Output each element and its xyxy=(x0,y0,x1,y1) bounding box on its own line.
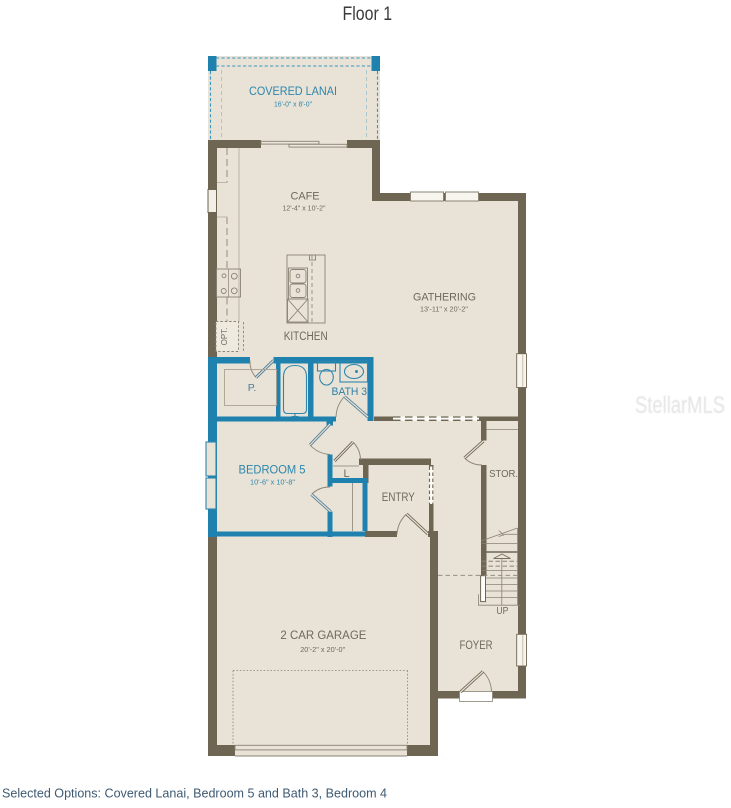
svg-text:20'-2" x 20'-0": 20'-2" x 20'-0" xyxy=(300,645,345,654)
svg-text:10'-6" x 10'-8": 10'-6" x 10'-8" xyxy=(250,478,295,487)
svg-text:12'-4" x 10'-2": 12'-4" x 10'-2" xyxy=(283,204,326,213)
svg-text:P.: P. xyxy=(248,382,257,394)
svg-text:2 CAR GARAGE: 2 CAR GARAGE xyxy=(280,630,366,642)
svg-text:ENTRY: ENTRY xyxy=(382,492,415,504)
svg-text:STOR.: STOR. xyxy=(489,468,518,480)
svg-text:FOYER: FOYER xyxy=(460,640,493,652)
svg-text:OPT.: OPT. xyxy=(220,328,229,346)
svg-text:GATHERING: GATHERING xyxy=(413,292,476,304)
svg-text:KITCHEN: KITCHEN xyxy=(284,331,328,343)
svg-text:13'-11" x 20'-2": 13'-11" x 20'-2" xyxy=(420,305,468,314)
svg-text:COVERED LANAI: COVERED LANAI xyxy=(249,84,337,98)
svg-text:StellarMLS: StellarMLS xyxy=(635,392,725,419)
svg-text:Floor 1: Floor 1 xyxy=(343,4,393,25)
svg-text:BATH 3: BATH 3 xyxy=(332,386,368,398)
svg-text:BEDROOM 5: BEDROOM 5 xyxy=(239,464,306,477)
svg-text:CAFE: CAFE xyxy=(291,191,320,203)
svg-text:Selected Options: Covered Lana: Selected Options: Covered Lanai, Bedroom… xyxy=(2,786,387,800)
svg-text:16'-0" x 8'-0": 16'-0" x 8'-0" xyxy=(274,100,312,109)
svg-text:UP: UP xyxy=(496,606,508,617)
svg-text:L: L xyxy=(343,468,349,480)
